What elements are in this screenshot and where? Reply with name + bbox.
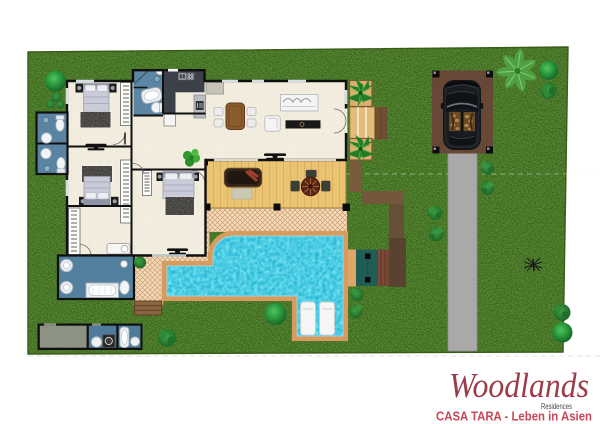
svg-text:CASA TARA - Leben in Asien: CASA TARA - Leben in Asien — [436, 409, 592, 424]
svg-text:Woodlands: Woodlands — [449, 366, 589, 405]
